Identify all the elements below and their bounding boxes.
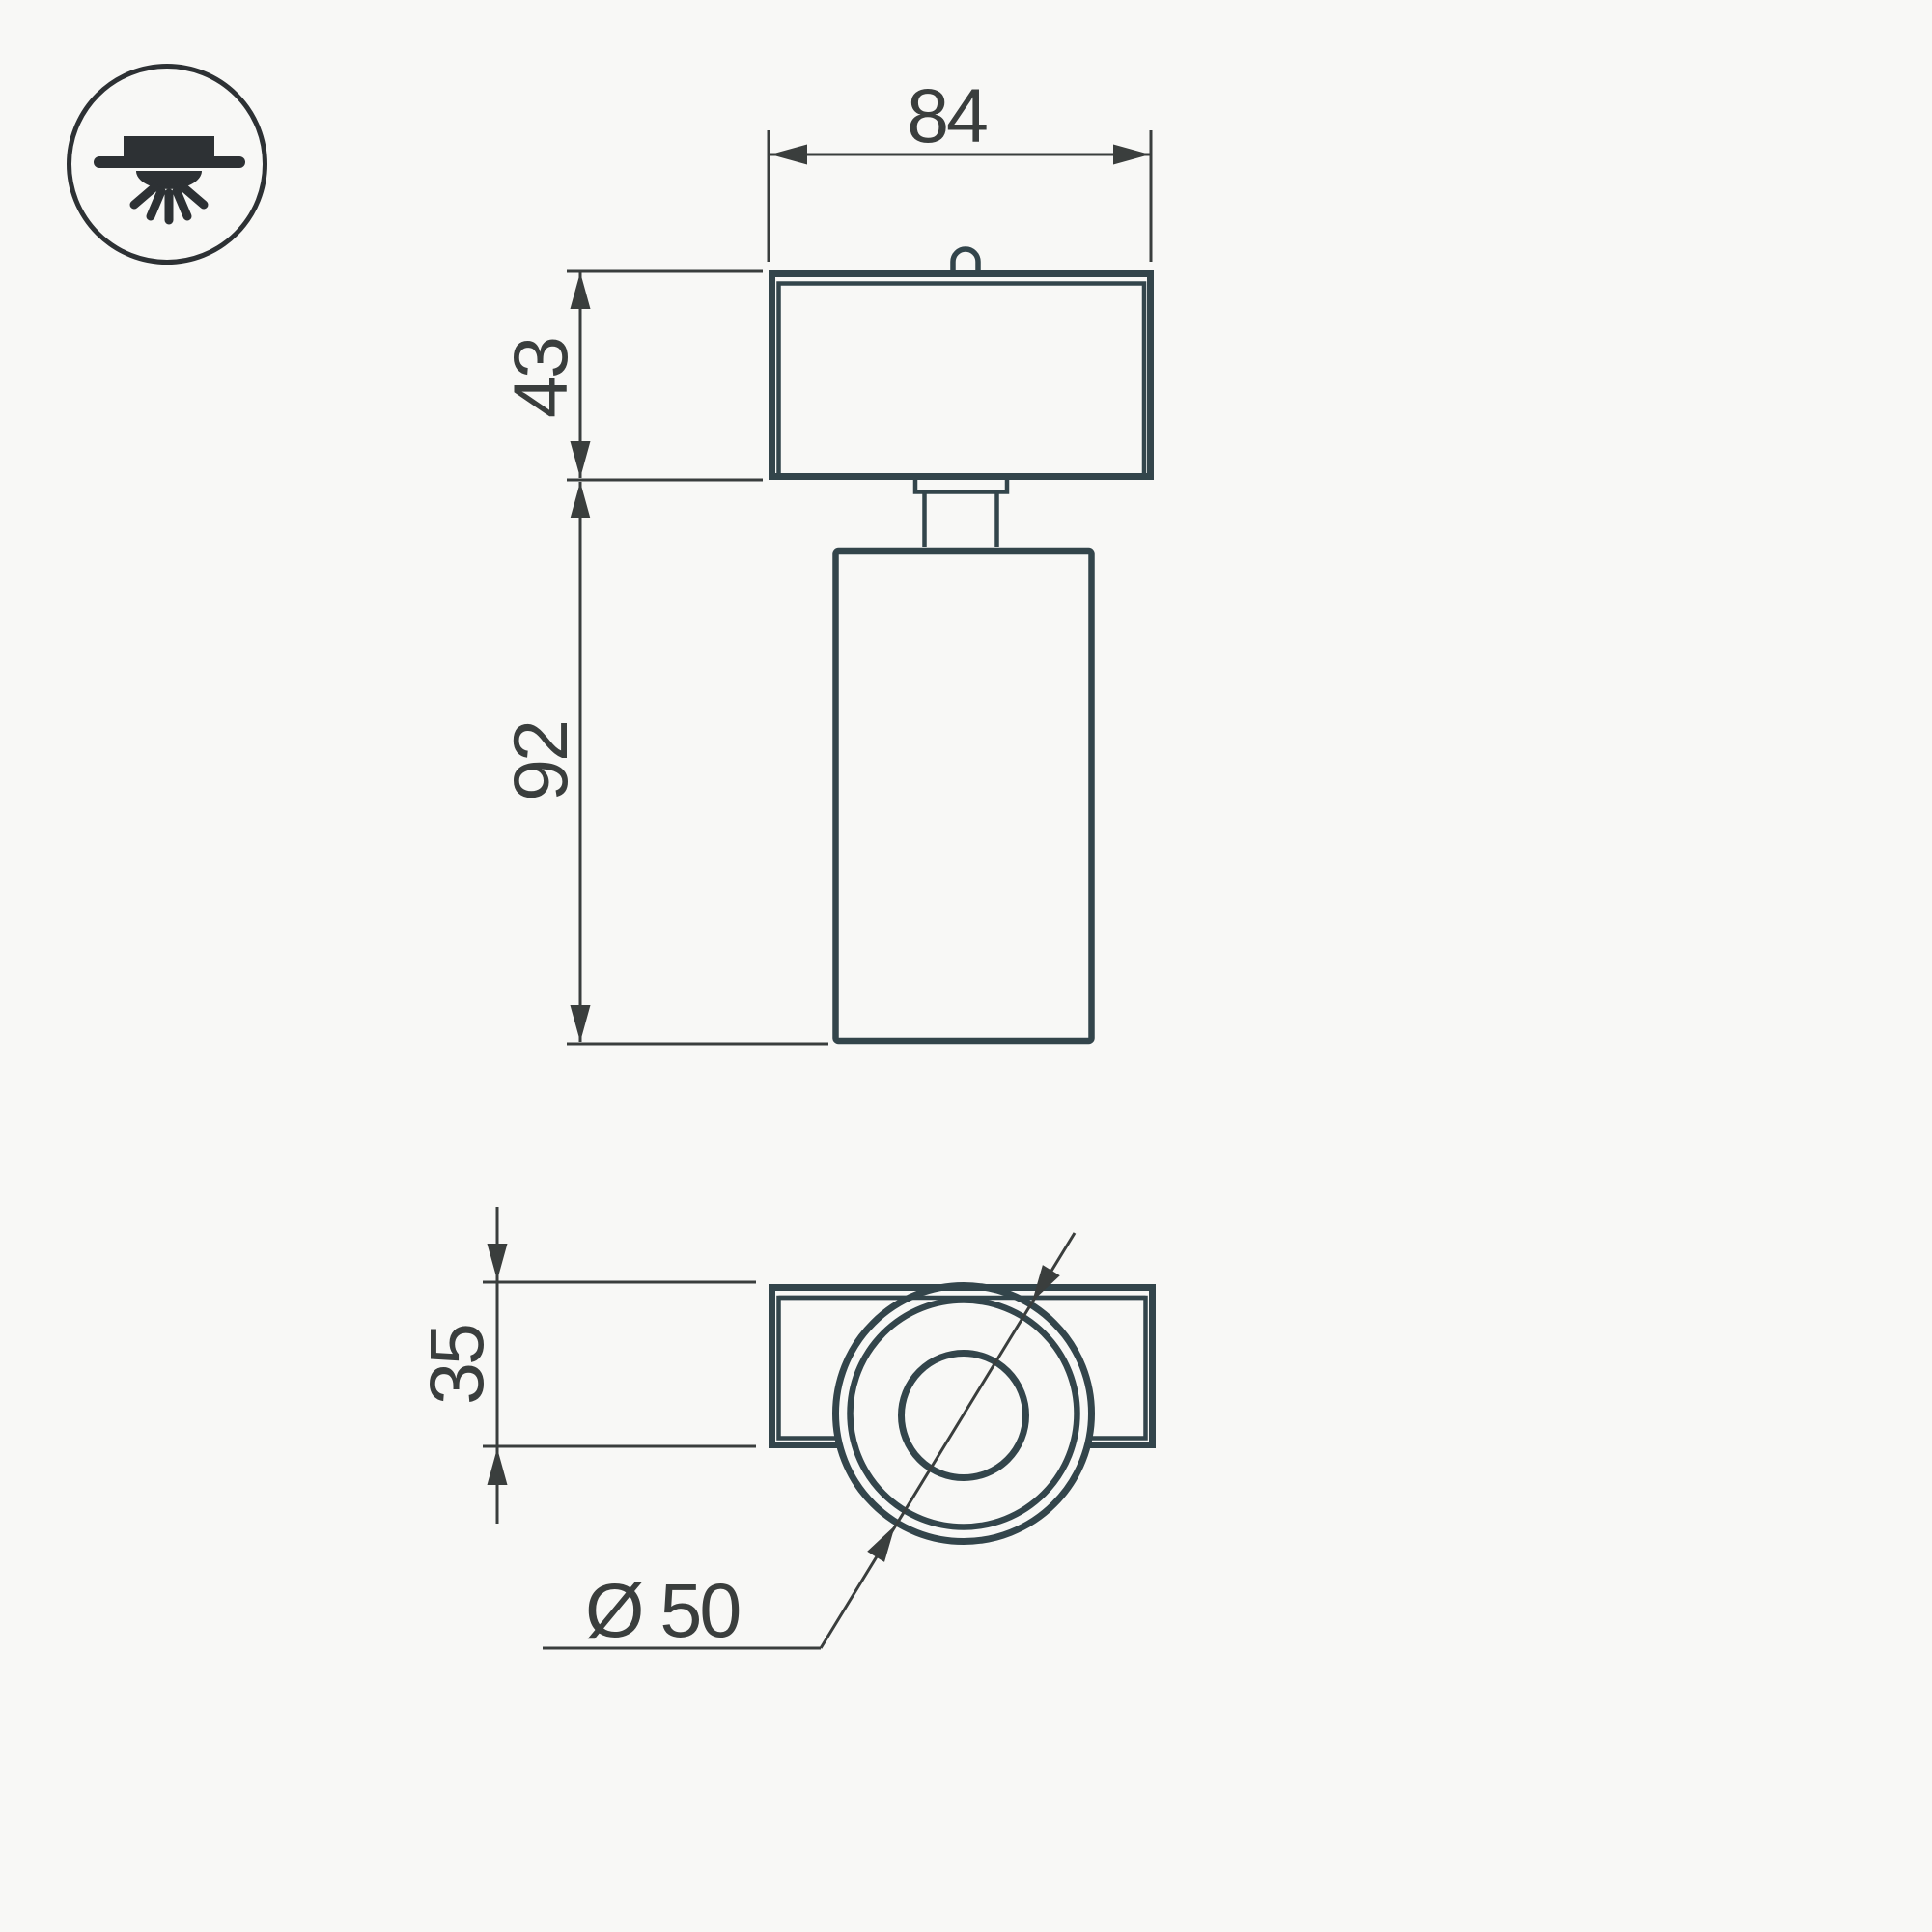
dim-92-arrow-bottom xyxy=(571,1005,591,1042)
dim-label-body-height: 92 xyxy=(497,722,583,801)
dim-84-arrow-right xyxy=(1113,145,1150,165)
technical-drawing-canvas: 84 43 92 35 Ø 50 xyxy=(0,0,1932,1932)
dim-92-group xyxy=(567,482,828,1044)
front-mount-box-inner xyxy=(779,284,1145,475)
icon-light-rays xyxy=(134,187,204,220)
dim-diameter-arrow-lower xyxy=(867,1526,895,1562)
front-mount-box-outer xyxy=(772,274,1151,477)
surface-downlight-icon xyxy=(94,136,245,189)
icon-lamp-body xyxy=(124,136,214,159)
dim-label-width: 84 xyxy=(907,72,987,158)
top-view xyxy=(769,1286,1156,1542)
front-swivel-flange xyxy=(915,480,1007,492)
dim-35-group xyxy=(483,1207,756,1524)
dim-43-arrow-bottom xyxy=(571,441,591,478)
dim-35-arrow-bottom xyxy=(488,1448,508,1485)
dim-43-arrow-top xyxy=(571,272,591,309)
front-cylinder-body xyxy=(836,551,1092,1041)
mount-type-icon-group xyxy=(70,67,266,263)
front-view xyxy=(772,249,1151,1041)
dim-label-head-height: 43 xyxy=(497,339,583,418)
front-top-knob xyxy=(953,249,978,270)
dim-43-group xyxy=(567,271,763,480)
dim-label-diameter: Ø 50 xyxy=(585,1567,739,1653)
dim-35-arrow-top xyxy=(488,1244,508,1280)
icon-light-dome xyxy=(136,171,202,189)
dim-92-arrow-top xyxy=(571,482,591,518)
icon-ceiling-bar xyxy=(94,156,245,168)
dim-84-arrow-left xyxy=(770,145,807,165)
dim-label-bracket-depth: 35 xyxy=(413,1326,499,1405)
technical-drawing-page: 84 43 92 35 Ø 50 xyxy=(0,0,1932,1932)
